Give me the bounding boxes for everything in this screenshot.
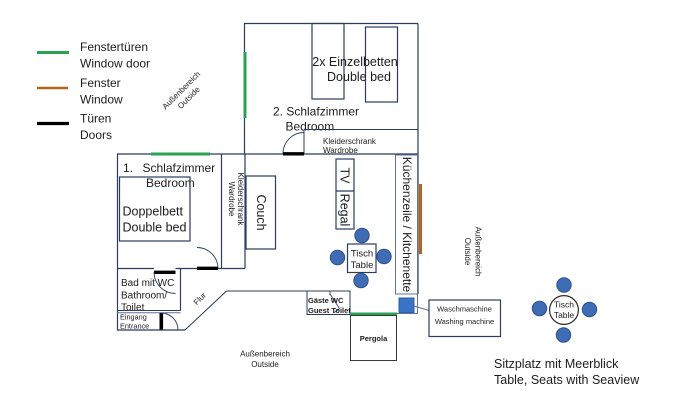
svg-text:Tisch: Tisch bbox=[351, 249, 373, 260]
svg-text:Double bed: Double bed bbox=[327, 70, 391, 84]
svg-text:Fenster: Fenster bbox=[80, 76, 121, 90]
svg-text:Kleiderschrank: Kleiderschrank bbox=[236, 173, 245, 227]
svg-text:TV: TV bbox=[338, 168, 352, 185]
svg-text:Double bed: Double bed bbox=[123, 221, 187, 235]
svg-text:Küchenzeile / Kitchenette: Küchenzeile / Kitchenette bbox=[400, 157, 414, 293]
svg-text:Regal: Regal bbox=[338, 194, 352, 227]
svg-text:Table, Seats with Seaview: Table, Seats with Seaview bbox=[494, 373, 640, 387]
svg-text:Couch: Couch bbox=[254, 194, 268, 230]
svg-text:Bedroom: Bedroom bbox=[146, 176, 195, 190]
svg-text:Bathroom/: Bathroom/ bbox=[121, 291, 167, 302]
svg-text:Window: Window bbox=[80, 93, 123, 107]
svg-text:Eingang: Eingang bbox=[120, 313, 147, 322]
svg-text:Table: Table bbox=[554, 310, 575, 320]
svg-text:Waschmaschine: Waschmaschine bbox=[437, 305, 492, 314]
svg-text:Doppelbett: Doppelbett bbox=[123, 205, 184, 219]
svg-text:Gäste WC: Gäste WC bbox=[308, 296, 344, 305]
svg-text:2x Einzelbetten: 2x Einzelbetten bbox=[312, 55, 398, 69]
svg-text:Doors: Doors bbox=[80, 128, 112, 142]
svg-text:Außenbereich: Außenbereich bbox=[240, 350, 290, 359]
svg-text:Outside: Outside bbox=[463, 238, 472, 266]
svg-text:Entrance: Entrance bbox=[120, 322, 149, 331]
svg-text:Window door: Window door bbox=[80, 57, 150, 71]
svg-text:1.: 1. bbox=[123, 161, 133, 175]
svg-text:Tisch: Tisch bbox=[554, 300, 574, 310]
svg-text:Türen: Türen bbox=[80, 112, 111, 126]
svg-text:Bedroom: Bedroom bbox=[286, 120, 335, 134]
svg-text:2. Schlafzimmer: 2. Schlafzimmer bbox=[273, 105, 359, 119]
svg-text:Guest Toilet: Guest Toilet bbox=[308, 306, 351, 315]
svg-text:Wardrobe: Wardrobe bbox=[227, 182, 236, 217]
svg-text:Pergola: Pergola bbox=[360, 334, 388, 343]
svg-text:Outside: Outside bbox=[251, 360, 279, 369]
svg-text:Sitzplatz mit Meerblick: Sitzplatz mit Meerblick bbox=[494, 357, 619, 371]
svg-text:Flur: Flur bbox=[192, 291, 208, 307]
svg-text:Bad mit WC: Bad mit WC bbox=[121, 278, 174, 289]
svg-text:Fenstertüren: Fenstertüren bbox=[80, 40, 148, 54]
svg-text:Schlafzimmer: Schlafzimmer bbox=[143, 161, 216, 175]
svg-text:Außenbereich: Außenbereich bbox=[474, 227, 483, 277]
svg-text:Washing machine: Washing machine bbox=[435, 317, 494, 326]
svg-text:Kleiderschrank: Kleiderschrank bbox=[323, 137, 377, 146]
svg-text:Table: Table bbox=[351, 260, 374, 271]
